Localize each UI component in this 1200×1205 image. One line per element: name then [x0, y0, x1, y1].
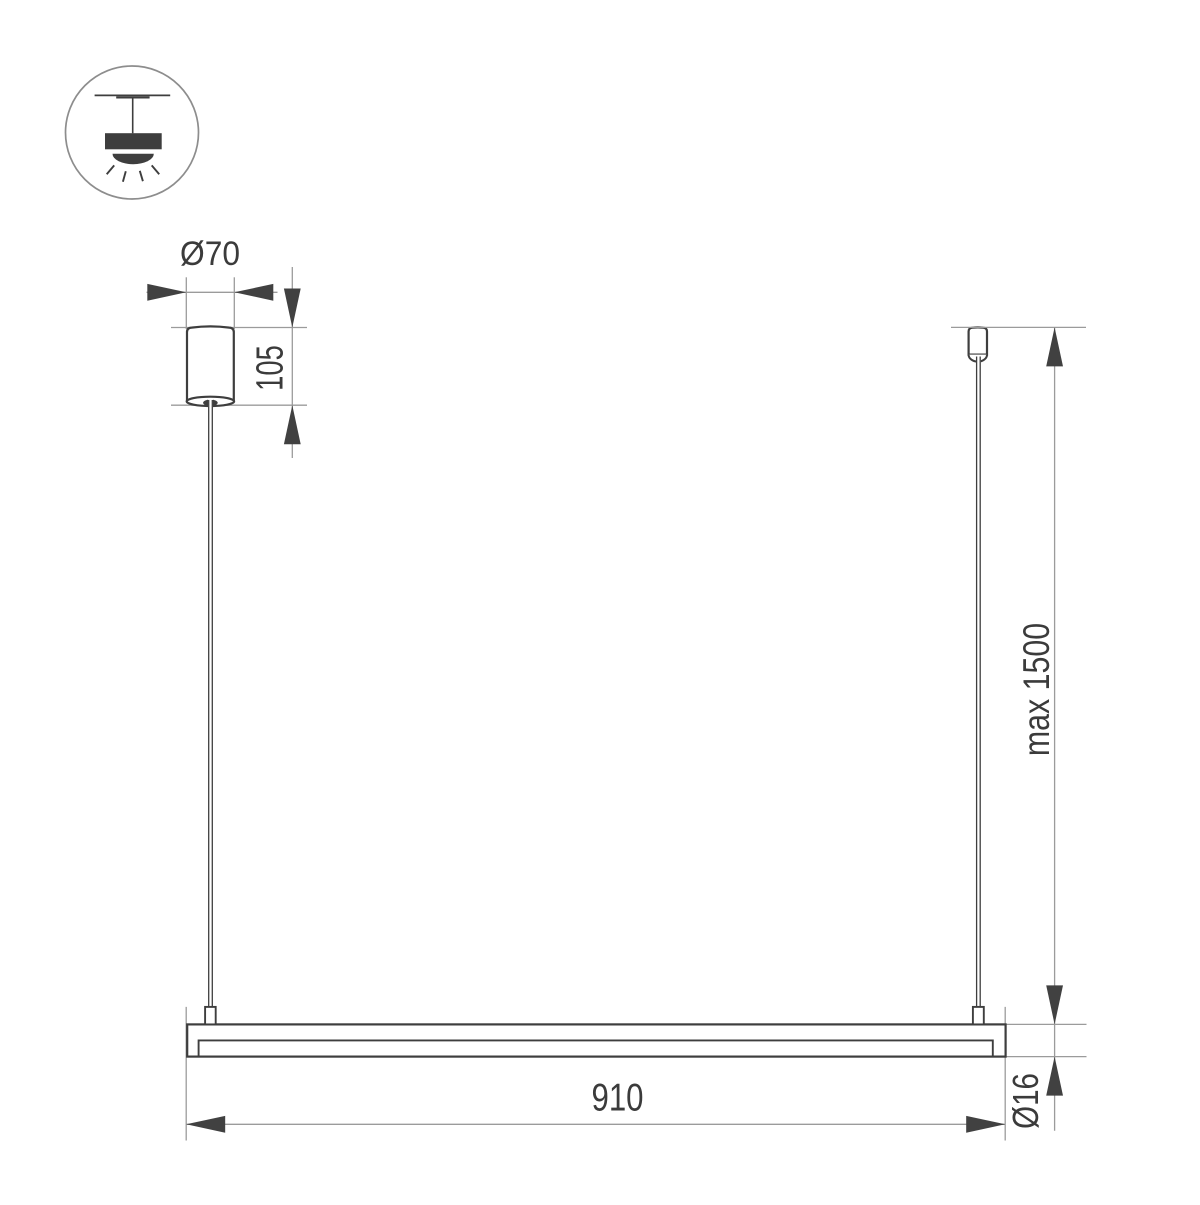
svg-text:Ø70: Ø70 [180, 235, 240, 274]
svg-text:105: 105 [249, 345, 291, 391]
svg-text:max 1500: max 1500 [1016, 623, 1058, 756]
svg-text:Ø16: Ø16 [1005, 1073, 1045, 1129]
svg-text:910: 910 [591, 1076, 643, 1119]
